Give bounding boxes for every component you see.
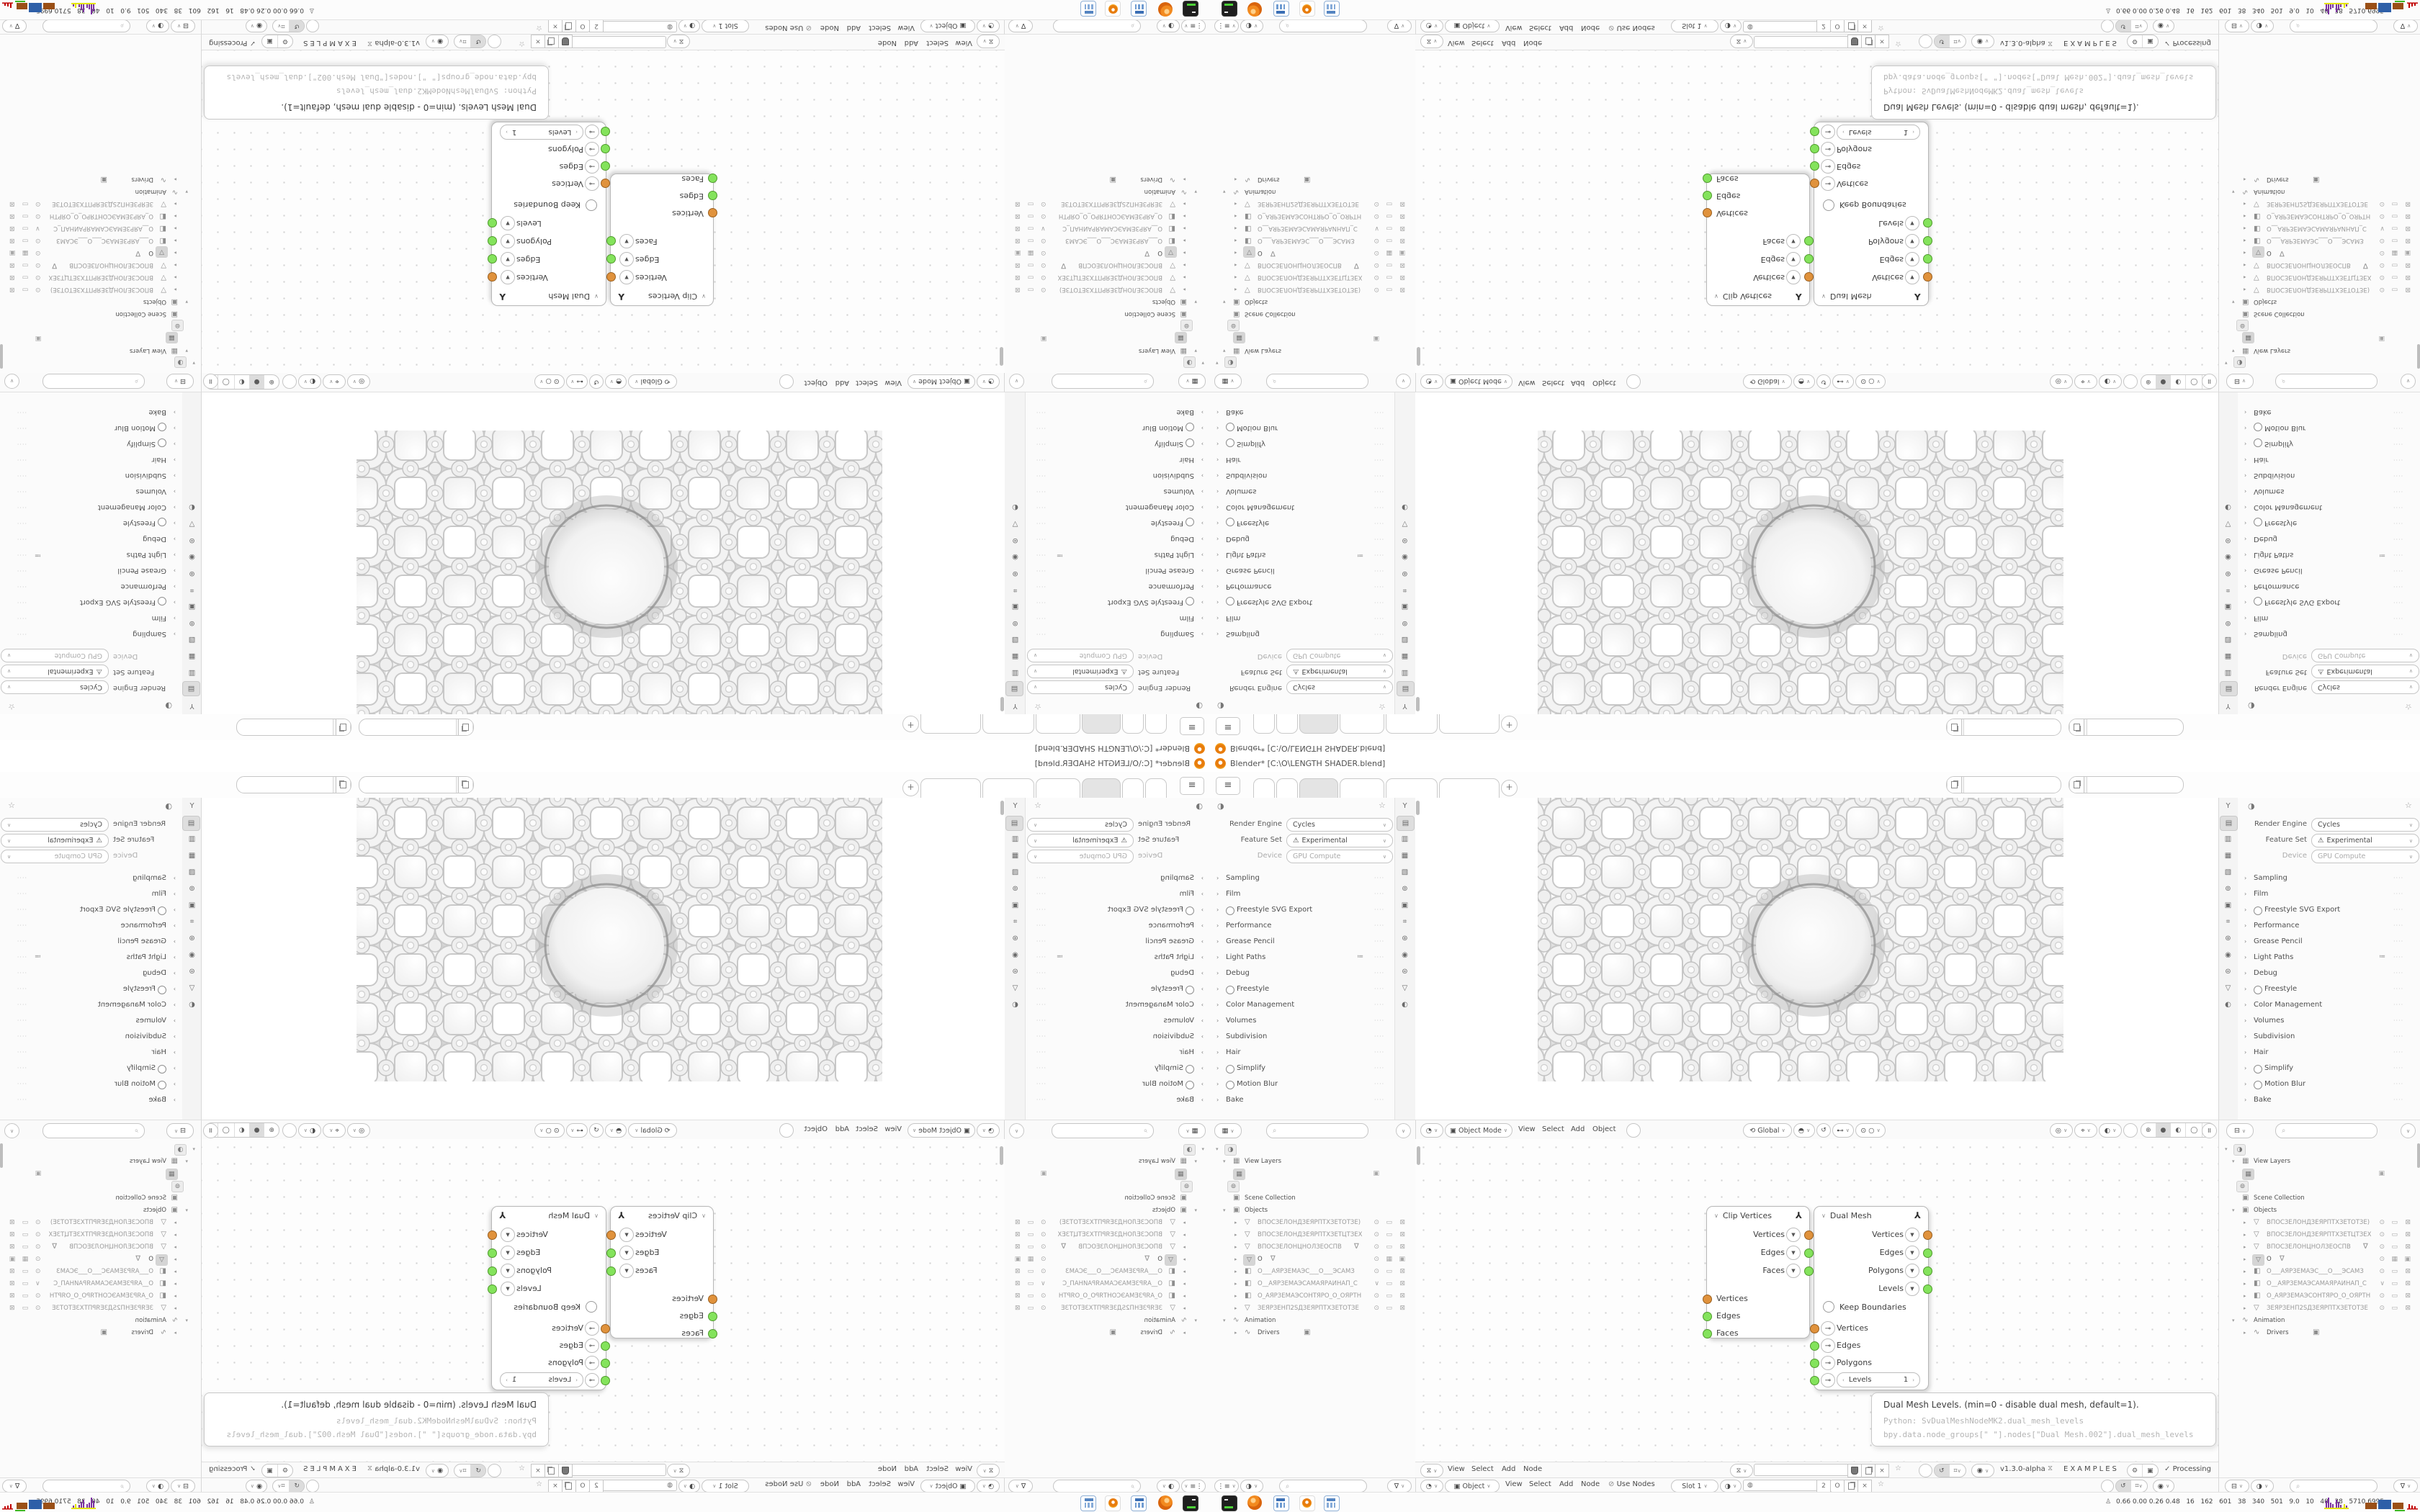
prop-section-hair[interactable]: ›Hair···· xyxy=(2238,452,2420,465)
disclosure-icon[interactable]: ▸ xyxy=(2244,287,2246,292)
outliner-object-row[interactable]: ▸◧О__АЯРЗЕМАЭСАМАЯРАИНАП_С∨▭⊠ xyxy=(1005,222,1210,234)
outliner-row-scene[interactable]: ▾◑ xyxy=(0,356,201,369)
shading-solid-icon[interactable]: ● xyxy=(249,375,264,389)
disclosure-icon[interactable]: ▸ xyxy=(174,225,176,231)
gear-icon[interactable]: ⚙ xyxy=(277,1464,292,1477)
disclosure-icon[interactable]: ▸ xyxy=(174,262,176,268)
viewport-3d[interactable] xyxy=(1415,392,2218,714)
snap-group[interactable]: ↺ ⌗∨ xyxy=(272,19,305,32)
visibility-icon[interactable]: ⊠ xyxy=(9,212,15,220)
filter-funnel-select[interactable]: ∇∨ xyxy=(2,19,27,32)
outliner-row-scene-collection[interactable]: ▣Scene Collection xyxy=(2219,1192,2420,1205)
node-editor-scroll-handle[interactable] xyxy=(1417,347,1420,366)
filter-funnel-select[interactable]: ∇∨ xyxy=(1008,1480,1033,1493)
outliner-object-row[interactable]: ▸▽ВПОСЗЕЛОНДЗЕЯРПТХЗЕТОТЗЕ)⊙▭⊠ xyxy=(2219,1217,2420,1229)
search-input[interactable]: ⌕ xyxy=(2290,1480,2378,1493)
outliner-row-objects[interactable]: ▾▣Objects xyxy=(1210,1205,1415,1217)
snap-target-select[interactable]: ◓∨ xyxy=(605,1123,627,1138)
gizmo-toggle[interactable]: ⊙ ○∨ xyxy=(1855,1123,1886,1138)
visibility-icon[interactable]: ▭ xyxy=(1386,237,1392,244)
socket-in-faces[interactable] xyxy=(1703,174,1712,183)
prop-section-bake[interactable]: ›Bake···· xyxy=(1005,405,1210,418)
prop-section-volumes[interactable]: ›Volumes···· xyxy=(0,1015,182,1028)
socket-out-edges[interactable] xyxy=(1923,254,1932,264)
visibility-icon[interactable]: ▣ xyxy=(35,335,42,342)
lightpaths-presets-icon[interactable]: ≔ xyxy=(1057,552,1063,559)
outliner-object-row[interactable]: ▸▽O∇⊙▦▣ xyxy=(1210,246,1415,258)
physics-tab-icon[interactable]: ◉ xyxy=(1397,550,1413,564)
scene-select[interactable]: ◑∨ xyxy=(1157,1480,1180,1493)
object-data-tab-icon[interactable]: ▽ xyxy=(184,517,200,531)
mesh-icon[interactable]: ▽ xyxy=(2252,1254,2264,1266)
use-nodes-checkbox[interactable]: ⊘ Use Nodes xyxy=(1608,24,1655,32)
section-radio-toggle[interactable] xyxy=(1186,1081,1194,1089)
disclosure-icon[interactable]: ▸ xyxy=(174,1269,176,1274)
pin-icon[interactable]: ☆ xyxy=(519,1464,525,1472)
menu-select[interactable]: Select xyxy=(1471,39,1494,47)
disclosure-icon[interactable]: ▸ xyxy=(1183,262,1186,268)
shading-solid-icon[interactable]: ● xyxy=(2156,1123,2172,1137)
socket-out-vertices[interactable] xyxy=(1804,1230,1814,1240)
visibility-icon[interactable]: ⊠ xyxy=(2405,1219,2411,1226)
outliner-row-world-chip[interactable]: ⊚ xyxy=(1005,320,1210,332)
visibility-icon[interactable]: ▭ xyxy=(1028,1268,1034,1275)
tool-tab-icon[interactable]: Y xyxy=(184,799,200,813)
section-radio-toggle[interactable] xyxy=(2254,1081,2262,1089)
lightpaths-presets-icon[interactable]: ≔ xyxy=(1057,953,1063,960)
disclosure-icon[interactable]: ▸ xyxy=(174,176,176,182)
visibility-icon[interactable]: ▭ xyxy=(1028,1243,1034,1251)
visibility-icon[interactable]: ⊙ xyxy=(1373,286,1379,293)
pin-icon[interactable]: ☆ xyxy=(519,40,525,48)
visibility-icon[interactable]: ⊠ xyxy=(2405,212,2411,220)
workspace-tab[interactable] xyxy=(1122,714,1144,734)
visibility-icon[interactable]: ⊠ xyxy=(1015,237,1021,244)
visibility-icon[interactable]: ▦ xyxy=(1386,1256,1392,1263)
prop-section-volumes[interactable]: ›Volumes···· xyxy=(2238,1015,2420,1028)
visibility-icon[interactable]: ⊙ xyxy=(2379,1268,2385,1275)
socket-menu-icon[interactable]: ▼ xyxy=(1786,270,1801,284)
visibility-icon[interactable]: ⊙ xyxy=(1041,1231,1047,1238)
editor-type-button[interactable]: ⧖∨ xyxy=(977,1464,1000,1477)
prop-section-light-paths[interactable]: ›Light Paths····≔ xyxy=(1210,547,1415,560)
snap-group[interactable]: ↺ ⌗∨ xyxy=(454,35,486,48)
editor-type-button[interactable]: ◔∨ xyxy=(1420,374,1443,389)
scene-tab-icon[interactable]: ▧ xyxy=(1007,865,1023,879)
visibility-icon[interactable]: ▣ xyxy=(1373,1170,1379,1177)
visibility-icon[interactable]: ⊙ xyxy=(35,261,41,269)
section-radio-toggle[interactable] xyxy=(2254,986,2262,994)
prop-section-performance[interactable]: ›Performance···· xyxy=(1210,920,1415,933)
visibility-icon[interactable]: ⊠ xyxy=(1399,1280,1405,1287)
tool-tab-icon[interactable]: Y xyxy=(2220,699,2236,713)
visibility-icon[interactable]: ▭ xyxy=(1028,1292,1034,1300)
copy-button[interactable] xyxy=(544,1464,559,1477)
copy-button[interactable] xyxy=(1861,1464,1875,1477)
world-tab-icon[interactable]: ⊚ xyxy=(2220,616,2236,630)
prop-section-film[interactable]: ›Film···· xyxy=(1005,611,1210,624)
prop-section-grease-pencil[interactable]: ›Grease Pencil···· xyxy=(2238,936,2420,949)
extra-buttons[interactable]: ⚙ ▣ xyxy=(2127,35,2159,48)
view-layer-chip[interactable]: ▦ xyxy=(1233,332,1245,343)
viewlayer-name-field[interactable] xyxy=(2087,719,2183,735)
menu-select[interactable]: Select xyxy=(1471,1465,1494,1473)
socket-in-edges[interactable] xyxy=(601,1341,610,1351)
scene-tab-icon[interactable]: ▧ xyxy=(2220,633,2236,647)
visibility-icon[interactable]: ⊠ xyxy=(1399,200,1405,207)
outliner-row-animation[interactable]: ▾∿Animation xyxy=(1210,1315,1415,1327)
transform-orientation-select[interactable]: ⟲ Global∨ xyxy=(1743,374,1792,389)
disclosure-icon[interactable]: ▸ xyxy=(2244,262,2246,268)
disclosure-icon[interactable]: ▸ xyxy=(1183,250,1186,256)
overlay-toggle[interactable]: ◉∨ xyxy=(426,35,449,48)
visibility-icon[interactable]: ⊠ xyxy=(2405,1268,2411,1275)
workspace-tab[interactable] xyxy=(1439,714,1500,734)
scene-chip[interactable]: ◑ xyxy=(1183,1144,1196,1156)
scene-chip[interactable]: ◑ xyxy=(1224,1144,1237,1156)
socket-menu-icon[interactable]: ▼ xyxy=(1905,252,1919,266)
disclosure-icon[interactable]: ▸ xyxy=(174,1244,176,1250)
disclosure-icon[interactable]: ▸ xyxy=(1234,1269,1237,1274)
prop-section-simplify[interactable]: ›Simplify···· xyxy=(1005,436,1210,449)
object-data-tab-icon[interactable]: ▽ xyxy=(1007,981,1023,995)
scene-tab-icon[interactable]: ▧ xyxy=(1397,633,1413,647)
prop-section-freestyle[interactable]: ›Freestyle···· xyxy=(1210,984,1415,996)
users-count-button[interactable]: 2 xyxy=(589,1480,604,1493)
visibility-icon[interactable]: ⊠ xyxy=(1015,212,1021,220)
node-editor[interactable]: ∨ Clip Vertices ⅄ Vertices▼ Edges▼ Faces… xyxy=(1415,50,2218,373)
node-clip-vertices[interactable]: ∨ Clip Vertices ⅄ Vertices▼ Edges▼ Faces… xyxy=(1706,174,1810,306)
prop-section-motion-blur[interactable]: ›Motion Blur···· xyxy=(1210,420,1415,433)
visibility-icon[interactable]: ⊙ xyxy=(35,1231,41,1238)
menu-view[interactable]: View xyxy=(1518,1125,1536,1133)
outliner-object-row[interactable]: ▸◧О___АЯРЗЕМАЭС___О___ЭСАМЗ⊙▭⊠ xyxy=(1005,1266,1210,1278)
filter-dropdown-icon[interactable]: ∨ xyxy=(1396,1123,1411,1138)
menu-hamburger-icon[interactable]: ≡ xyxy=(1180,777,1204,795)
section-radio-toggle[interactable] xyxy=(158,986,166,994)
visibility-icon[interactable]: ⊙ xyxy=(1373,212,1379,220)
outliner-row-world-chip[interactable]: ⊚ xyxy=(2219,1180,2420,1192)
levels-stepper[interactable]: ‹ Levels 1 › xyxy=(500,125,583,140)
mesh-icon[interactable]: ▽ xyxy=(156,246,168,258)
copy-icon[interactable] xyxy=(458,776,473,793)
extra-buttons[interactable]: ⚙ ▣ xyxy=(2127,1464,2159,1477)
disclosure-icon[interactable]: ▸ xyxy=(1183,225,1186,231)
keep-boundaries-checkbox[interactable]: Keep Boundaries xyxy=(1823,199,1906,211)
visibility-icon[interactable]: ⊠ xyxy=(9,261,15,269)
section-radio-toggle[interactable] xyxy=(2254,423,2262,431)
stepper-right-icon[interactable]: › xyxy=(1912,1377,1914,1383)
visibility-icon[interactable]: ▭ xyxy=(1028,261,1034,269)
visibility-icon[interactable]: ⊠ xyxy=(9,1268,15,1275)
disclosure-icon[interactable]: ▸ xyxy=(174,287,176,292)
filter-funnel-select[interactable]: ∇∨ xyxy=(1387,19,1412,32)
outliner-object-row[interactable]: ▸◧О__АЯРЗЕМАЭСАМАЯРАИНАП_С∨▭⊠ xyxy=(1210,222,1415,234)
visibility-icon[interactable]: ⊙ xyxy=(35,286,41,293)
object-data-tab-icon[interactable]: ▽ xyxy=(1397,517,1413,531)
outliner-object-row[interactable]: ▸▽ВПОСЗЕЛОНЦНОЛЗЕОСПВ∇⊙▭⊠ xyxy=(0,258,201,271)
section-radio-toggle[interactable] xyxy=(158,1081,166,1089)
socket-in-polygons[interactable] xyxy=(601,1359,610,1368)
socket-in-faces[interactable] xyxy=(708,1329,717,1338)
socket-out-vertices[interactable] xyxy=(488,1230,497,1240)
filter-dropdown-icon[interactable]: ∨ xyxy=(1396,374,1411,389)
scene-name-field[interactable] xyxy=(1964,719,2061,735)
socket-menu-icon[interactable]: ▼ xyxy=(1905,216,1919,230)
overlay-toggle[interactable]: ◉∨ xyxy=(1971,35,1994,48)
viewlayer-name-field[interactable] xyxy=(237,777,333,793)
search-icon[interactable] xyxy=(1626,1123,1641,1138)
snap-curve-icon[interactable]: ↺ xyxy=(1935,35,1950,48)
pin-icon[interactable]: ☆ xyxy=(1895,1464,1901,1472)
snap-curve-icon[interactable]: ↺ xyxy=(289,20,304,32)
tool-tab-icon[interactable]: Y xyxy=(184,699,200,713)
prop-section-debug[interactable]: ›Debug···· xyxy=(0,968,182,981)
visibility-icon[interactable]: ⊠ xyxy=(9,1280,15,1287)
visibility-icon[interactable]: ⊙ xyxy=(1041,212,1047,220)
workspace-tab[interactable] xyxy=(1386,714,1438,734)
view-layer-chip[interactable]: ▦ xyxy=(1175,1169,1187,1180)
disclosure-icon[interactable]: ▸ xyxy=(2244,213,2246,219)
visibility-icon[interactable]: ∨ xyxy=(1374,225,1379,232)
snap-grid-icon[interactable]: ⌗∨ xyxy=(273,20,289,32)
outliner-object-row[interactable]: ▸◧О__АЯРЗЕМАЭСАМАЯРАИНАП_С∨▭⊠ xyxy=(0,1278,201,1290)
orphan-button[interactable]: O xyxy=(575,19,590,32)
visibility-icon[interactable]: ∨ xyxy=(35,1280,40,1287)
viewlayer-name-field[interactable] xyxy=(2087,777,2183,793)
disclosure-icon[interactable]: ▾ xyxy=(185,189,188,194)
prop-section-color-management[interactable]: ›Color Management···· xyxy=(2238,999,2420,1012)
section-radio-toggle[interactable] xyxy=(158,906,166,915)
visibility-icon[interactable]: ⊙ xyxy=(2379,1219,2385,1226)
disclosure-icon[interactable]: ▸ xyxy=(1183,1305,1186,1311)
workspace-tab[interactable] xyxy=(1276,714,1298,734)
visibility-icon[interactable]: ⊙ xyxy=(2379,1231,2385,1238)
section-radio-toggle[interactable] xyxy=(2254,438,2262,447)
show-gizmo-select[interactable]: ◎∨ xyxy=(2050,374,2073,389)
keep-boundaries-checkbox[interactable]: Keep Boundaries xyxy=(514,199,597,211)
collapse-icon[interactable]: ∨ xyxy=(594,1212,599,1219)
feature-set-select[interactable]: ⚠ Experimental∨ xyxy=(1286,665,1393,678)
list-mode-select[interactable]: ⋮≡∨ xyxy=(1214,1480,1239,1493)
outliner-row-view-layers[interactable]: ▾▦View Layers xyxy=(1210,344,1415,356)
tool-tab-icon[interactable]: Y xyxy=(1397,799,1413,813)
prop-section-volumes[interactable]: ›Volumes···· xyxy=(2238,484,2420,497)
prop-section-grease-pencil[interactable]: ›Grease Pencil···· xyxy=(1210,563,1415,576)
outliner-object-row[interactable]: ▸▽ВПОСЗЕЛОНДЗЕЯРПТХЗЕТОТЗЕ)⊙▭⊠ xyxy=(1005,1217,1210,1229)
socket-in-levels[interactable] xyxy=(1810,1376,1819,1385)
outliner-row-drivers[interactable]: ▸∿Drivers▣ xyxy=(2219,1327,2420,1339)
prop-section-freestyle[interactable]: ›Freestyle···· xyxy=(1005,516,1210,528)
visibility-icon[interactable]: ▭ xyxy=(2391,1219,2398,1226)
visibility-icon[interactable]: ⊠ xyxy=(1399,261,1405,269)
disclosure-icon[interactable]: ▸ xyxy=(1234,1281,1237,1287)
socket-out-vertices[interactable] xyxy=(606,1230,616,1240)
prop-section-film[interactable]: ›Film···· xyxy=(0,611,182,624)
prop-section-freestyle[interactable]: ›Freestyle···· xyxy=(0,984,182,996)
section-radio-toggle[interactable] xyxy=(1186,423,1194,431)
visibility-icon[interactable]: ▭ xyxy=(22,274,29,281)
outliner-object-row[interactable]: ▸◧О___АЯРЗЕМАЭС___О___ЭСАМЗ⊙▭⊠ xyxy=(1005,234,1210,246)
visibility-icon[interactable]: ⊙ xyxy=(1041,1292,1047,1300)
menu-hamburger-icon[interactable]: ≡ xyxy=(1180,717,1204,735)
outliner-row-scene[interactable]: ▾◑ xyxy=(0,1143,201,1156)
disclosure-icon[interactable]: ▸ xyxy=(174,274,176,280)
render-engine-select[interactable]: Cycles∨ xyxy=(2311,680,2419,694)
workspace-tab[interactable] xyxy=(1340,714,1384,734)
socket-out-vertices[interactable] xyxy=(1923,272,1932,282)
workspace-tab[interactable] xyxy=(1122,778,1144,798)
visibility-icon[interactable]: ⊙ xyxy=(2379,212,2385,220)
visibility-icon[interactable]: ⊙ xyxy=(35,249,41,256)
prop-section-freestyle-svg-export[interactable]: ›Freestyle SVG Export···· xyxy=(0,595,182,608)
xray-select[interactable]: ◐∨ xyxy=(2099,1123,2122,1138)
disclosure-icon[interactable]: ▾ xyxy=(2232,1207,2235,1213)
menu-select[interactable]: Select xyxy=(869,1480,891,1488)
stepper-right-icon[interactable]: › xyxy=(506,1377,508,1383)
page-icon[interactable]: ▣ xyxy=(262,1464,277,1477)
modifiers-tab-icon[interactable]: ⌗ xyxy=(1007,915,1023,929)
render-tab-icon[interactable]: ▤ xyxy=(182,816,200,831)
filter-dropdown-icon[interactable]: ∨ xyxy=(4,374,19,389)
plug-icon[interactable]: ⊸ xyxy=(1821,1338,1835,1353)
visibility-icon[interactable]: ⊠ xyxy=(1399,286,1405,293)
modifiers-tab-icon[interactable]: ⌗ xyxy=(1007,583,1023,597)
section-radio-toggle[interactable] xyxy=(158,423,166,431)
visibility-icon[interactable]: ⊙ xyxy=(1373,249,1379,256)
outliner-row-world-chip[interactable]: ⊚ xyxy=(0,1180,201,1192)
node-tree-name-field[interactable] xyxy=(565,36,666,48)
workspace-tab-active[interactable] xyxy=(1082,714,1121,734)
outliner-object-row[interactable]: ▸▽ВПОСЗЕЛОНДЗЕЯРПТХЗЕТОТЗЕ)⊙▭⊠ xyxy=(0,283,201,295)
slot-select[interactable]: Slot 1∨ xyxy=(1671,1480,1718,1493)
menu-object[interactable]: Object xyxy=(1592,379,1616,387)
pause-button[interactable]: II xyxy=(203,1123,218,1138)
visibility-icon[interactable]: ⊙ xyxy=(2379,237,2385,244)
fake-user-shield-button[interactable] xyxy=(1847,35,1862,48)
outliner-row-view-layers[interactable]: ▾▦View Layers xyxy=(2219,1156,2420,1168)
disclosure-icon[interactable]: ▸ xyxy=(1183,1330,1186,1336)
visibility-icon[interactable]: ⊠ xyxy=(2405,261,2411,269)
socket-menu-icon[interactable]: ▼ xyxy=(1786,234,1801,248)
gear-icon[interactable]: ⚙ xyxy=(277,35,292,48)
prop-section-grease-pencil[interactable]: ›Grease Pencil···· xyxy=(1210,936,1415,949)
pin-icon[interactable]: ☆ xyxy=(1379,801,1386,810)
visibility-icon[interactable]: ⊙ xyxy=(1041,1268,1047,1275)
visibility-icon[interactable]: ▭ xyxy=(1028,286,1034,293)
node-header[interactable]: ∨ Clip Vertices ⅄ xyxy=(1707,288,1809,305)
section-radio-toggle[interactable] xyxy=(2254,1065,2262,1074)
prop-section-performance[interactable]: ›Performance···· xyxy=(2238,920,2420,933)
outliner-row-objects[interactable]: ▾▣Objects xyxy=(1005,1205,1210,1217)
copy-icon[interactable] xyxy=(336,719,351,736)
prop-section-freestyle-svg-export[interactable]: ›Freestyle SVG Export···· xyxy=(0,904,182,917)
outliner-row-world-chip[interactable]: ⊚ xyxy=(1005,1180,1210,1192)
tree-type-icon[interactable]: ⧖∨ xyxy=(667,1464,690,1477)
extra-buttons[interactable]: ⚙ ▣ xyxy=(261,35,293,48)
tree-type-icon[interactable]: ⧖∨ xyxy=(667,35,690,48)
constraints-tab-icon[interactable]: ⊜ xyxy=(1007,965,1023,978)
section-radio-toggle[interactable] xyxy=(1186,906,1194,915)
feature-set-select[interactable]: ⚠ Experimental∨ xyxy=(1027,834,1134,847)
prop-section-simplify[interactable]: ›Simplify···· xyxy=(0,436,182,449)
material-tab-icon[interactable]: ◐ xyxy=(2220,500,2236,514)
socket-in-polygons[interactable] xyxy=(1810,1359,1819,1368)
prop-section-performance[interactable]: ›Performance···· xyxy=(1005,579,1210,592)
outliner-row-view-layers[interactable]: ▾▦View Layers xyxy=(1005,1156,1210,1168)
prop-section-light-paths[interactable]: ›Light Paths····≔ xyxy=(1005,952,1210,965)
lightpaths-presets-icon[interactable]: ≔ xyxy=(35,953,41,960)
mesh-icon[interactable]: ▽ xyxy=(156,1254,168,1266)
prop-section-color-management[interactable]: ›Color Management···· xyxy=(1005,500,1210,513)
socket-out-polygons[interactable] xyxy=(1923,236,1932,246)
section-radio-toggle[interactable] xyxy=(1186,986,1194,994)
viewlayer-id-selector[interactable]: ▦∨ xyxy=(236,719,351,736)
prop-section-volumes[interactable]: ›Volumes···· xyxy=(0,484,182,497)
object-tab-icon[interactable]: ▣ xyxy=(1397,899,1413,912)
workspace-tab[interactable] xyxy=(982,714,1034,734)
outliner-scroll-handle[interactable] xyxy=(2417,1143,2420,1168)
pin-icon[interactable]: ☆ xyxy=(1379,702,1386,711)
proportional-edit-select[interactable]: ⊷∨ xyxy=(566,374,588,389)
socket-menu-icon[interactable]: ▼ xyxy=(1905,1264,1919,1278)
disclosure-icon[interactable]: ▸ xyxy=(1234,250,1237,256)
socket-out-levels[interactable] xyxy=(488,218,497,228)
list-mode-select[interactable]: ⊟∨ xyxy=(171,1480,195,1493)
search-input[interactable]: ⌕ xyxy=(1053,1480,1141,1493)
visibility-icon[interactable]: ⊙ xyxy=(1041,237,1047,244)
socket-menu-icon[interactable]: ▼ xyxy=(619,1228,634,1242)
object-data-tab-icon[interactable]: ▽ xyxy=(2220,981,2236,995)
prop-section-film[interactable]: ›Film···· xyxy=(1210,888,1415,901)
render-tab-icon[interactable]: ▤ xyxy=(2220,681,2238,696)
node-header[interactable]: ∨ Dual Mesh ⅄ xyxy=(1814,1207,1928,1224)
shader-type-select[interactable]: ▣ Object∨ xyxy=(1445,19,1500,32)
visibility-icon[interactable]: ▭ xyxy=(22,1292,29,1300)
material-tab-icon[interactable]: ◐ xyxy=(1397,500,1413,514)
socket-out-faces[interactable] xyxy=(1804,236,1814,246)
outliner-object-row[interactable]: ▸▽O∇⊙▦▣ xyxy=(1005,246,1210,258)
prop-section-sampling[interactable]: ›Sampling···· xyxy=(1210,873,1415,886)
prop-section-color-management[interactable]: ›Color Management···· xyxy=(1005,999,1210,1012)
visibility-icon[interactable]: ⊙ xyxy=(2379,261,2385,269)
visibility-icon[interactable]: ⊙ xyxy=(1373,1219,1379,1226)
scene-tab-icon[interactable]: ▧ xyxy=(184,865,200,879)
overlay-toggle[interactable]: ◉∨ xyxy=(1971,1464,1994,1477)
outliner-object-row[interactable]: ▸▽ВПОСЗЕЛОНДЗЕЯРПТХЗЕТЦТЗЕХ⊙▭⊠ xyxy=(2219,271,2420,283)
prop-section-motion-blur[interactable]: ›Motion Blur···· xyxy=(1005,1079,1210,1092)
disclosure-icon[interactable]: ▸ xyxy=(2244,176,2246,182)
slot-select[interactable]: Slot 1∨ xyxy=(1671,19,1718,32)
outliner-object-row[interactable]: ▸▽ВПОСЗЕЛОНДЗЕЯРПТХЗЕТЦТЗЕХ⊙▭⊠ xyxy=(1005,271,1210,283)
outliner-object-row[interactable]: ▸▽ЗЕЯРЗЕНП2SДЗЕЯРПТХЗЕТОТЗЕ⊙▭⊠ xyxy=(0,1302,201,1315)
outliner-row-view-layers[interactable]: ▾▦View Layers xyxy=(0,344,201,356)
prop-section-hair[interactable]: ›Hair···· xyxy=(1210,452,1415,465)
snap-curve-icon[interactable]: ↺ xyxy=(2116,1480,2131,1492)
output-tab-icon[interactable]: ▥ xyxy=(1007,832,1023,846)
visibility-icon[interactable]: ⊠ xyxy=(2405,200,2411,207)
prop-section-debug[interactable]: ›Debug···· xyxy=(1210,531,1415,544)
menu-node[interactable]: Node xyxy=(1523,1465,1542,1473)
tool-tab-icon[interactable]: Y xyxy=(1397,699,1413,713)
outliner-row-view-layers[interactable]: ▾▦View Layers xyxy=(1005,344,1210,356)
display-mode-select[interactable]: ▦∨ xyxy=(1178,374,1206,389)
menu-add[interactable]: Add xyxy=(1571,1125,1585,1133)
disclosure-icon[interactable]: ▸ xyxy=(1183,213,1186,219)
outliner-row-animation[interactable]: ▾∿Animation xyxy=(1005,185,1210,197)
socket-out-faces[interactable] xyxy=(1804,1266,1814,1276)
filter-dropdown-icon[interactable]: ∨ xyxy=(1009,1123,1024,1138)
